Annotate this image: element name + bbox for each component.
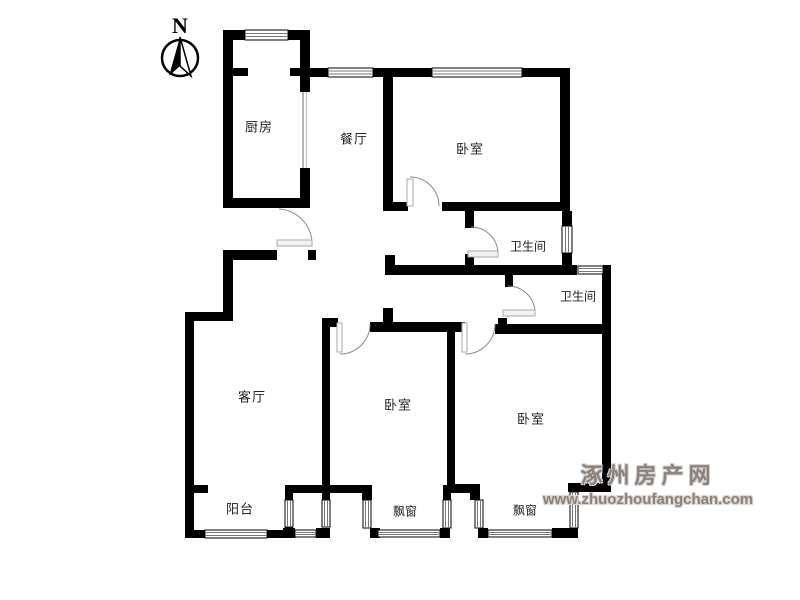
middle-bay-window-bottom bbox=[378, 530, 440, 537]
right-bay-window-bottom bbox=[488, 530, 552, 537]
watermark-site-name: 涿州房产网 bbox=[520, 458, 776, 490]
entry-door bbox=[277, 209, 312, 246]
room-label-living: 客厅 bbox=[238, 387, 266, 406]
balcony-right-window bbox=[285, 500, 293, 527]
lower-bathroom-window bbox=[578, 266, 603, 274]
room-label-balcony: 阳台 bbox=[226, 499, 254, 518]
room-label-bay-window-middle: 飘窗 bbox=[393, 503, 417, 520]
top-bedroom-door bbox=[407, 177, 439, 206]
living-divider-window bbox=[322, 500, 330, 527]
right-bay-window-left bbox=[475, 500, 483, 528]
balcony-window bbox=[205, 530, 267, 538]
room-label-bathroom-lower: 卫生间 bbox=[560, 288, 596, 305]
niche-window bbox=[295, 530, 316, 537]
compass-north-label: N bbox=[172, 13, 188, 39]
lower-bathroom-door bbox=[503, 286, 535, 316]
compass bbox=[162, 37, 198, 76]
middle-bay-window-left bbox=[363, 500, 371, 528]
room-label-dining: 餐厅 bbox=[340, 129, 368, 148]
upper-bathroom-window bbox=[562, 226, 572, 253]
room-label-bedroom-top: 卧室 bbox=[456, 139, 484, 158]
room-label-kitchen: 厨房 bbox=[245, 117, 273, 136]
watermark-url: www.zhuozhoufangchan.com bbox=[520, 491, 776, 508]
room-label-bathroom-upper: 卫生间 bbox=[510, 238, 546, 255]
room-label-bedroom-right: 卧室 bbox=[517, 409, 545, 428]
dining-window bbox=[328, 68, 373, 77]
middle-bay-window-right bbox=[443, 500, 451, 528]
kitchen-sliding-door bbox=[303, 92, 307, 168]
right-bedroom-door bbox=[462, 323, 495, 354]
doors bbox=[277, 92, 535, 354]
top-bedroom-window bbox=[432, 68, 522, 77]
watermark: 涿州房产网 www.zhuozhoufangchan.com bbox=[520, 458, 776, 508]
kitchen-window bbox=[245, 30, 288, 40]
middle-bedroom-door bbox=[337, 323, 370, 354]
upper-bathroom-door bbox=[468, 227, 498, 257]
room-label-bedroom-middle: 卧室 bbox=[384, 395, 412, 414]
floor-plan-page: N 厨房 餐厅 卧室 卫生间 卫生间 客厅 卧室 卧室 阳台 飘窗 飘窗 涿州房… bbox=[0, 0, 800, 600]
